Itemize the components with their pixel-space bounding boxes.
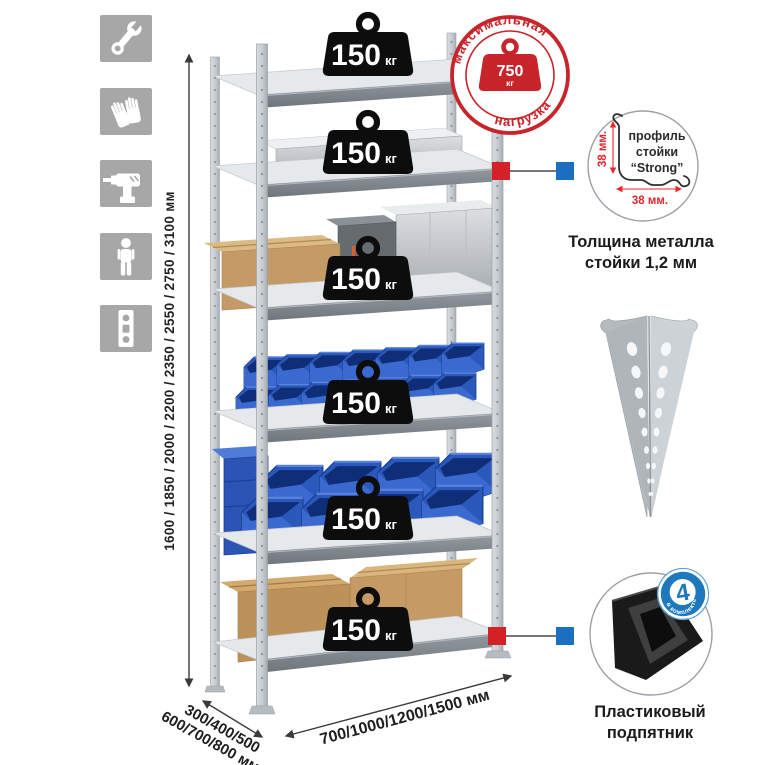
profile-caption-line2: стойки 1,2 мм bbox=[585, 254, 697, 272]
profile-label-2: стойки bbox=[636, 145, 678, 159]
wrench-icon bbox=[100, 15, 152, 62]
gloves-icon bbox=[100, 88, 152, 135]
infographic-canvas: 150 кг bbox=[0, 0, 765, 765]
max-load-stamp: максимальная нагрузка 750 кг bbox=[439, 0, 579, 143]
callout-top bbox=[492, 162, 574, 180]
callout-red-square-top bbox=[492, 162, 510, 180]
angle-profile-image bbox=[601, 316, 698, 517]
callout-bottom bbox=[488, 627, 574, 645]
storage-rack bbox=[204, 15, 511, 714]
width-dimension: 700/1000/1200/1500 мм bbox=[286, 676, 511, 749]
callout-red-square-bottom bbox=[488, 627, 506, 645]
plastic-foot-circle: 4 в комплекте Пластиковый подпятник bbox=[590, 564, 713, 742]
perforated-strip-icon bbox=[100, 305, 152, 352]
rack-post-back-left bbox=[205, 57, 225, 692]
width-dimension-label: 700/1000/1200/1500 мм bbox=[318, 687, 491, 749]
person-icon bbox=[100, 233, 152, 280]
foot-caption-line1: Пластиковый bbox=[594, 703, 705, 721]
profile-dim-horizontal: 38 мм. bbox=[632, 195, 668, 207]
profile-caption-line1: Толщина металла bbox=[568, 233, 714, 251]
stamp-unit: кг bbox=[506, 78, 514, 88]
height-dimension: 1600 / 1850 / 2000 / 2200 / 2350 / 2550 … bbox=[162, 55, 189, 686]
foot-caption-line2: подпятник bbox=[607, 724, 694, 742]
height-dimension-label: 1600 / 1850 / 2000 / 2200 / 2350 / 2550 … bbox=[162, 191, 177, 551]
callout-blue-square-top bbox=[556, 162, 574, 180]
drill-icon bbox=[100, 160, 152, 207]
profile-detail-circle: 38 мм. 38 мм. профиль стойки “Strong” То… bbox=[568, 111, 714, 272]
profile-dim-vertical: 38 мм. bbox=[597, 131, 609, 167]
profile-label-1: профиль bbox=[628, 129, 685, 143]
profile-label-3: “Strong” bbox=[631, 161, 684, 175]
product-infographic: 150 кг bbox=[0, 0, 765, 765]
callout-blue-square-bottom bbox=[556, 627, 574, 645]
sidebar-icons bbox=[100, 15, 152, 352]
depth-dimension: 300/400/500 600/700/800 мм bbox=[158, 693, 271, 765]
